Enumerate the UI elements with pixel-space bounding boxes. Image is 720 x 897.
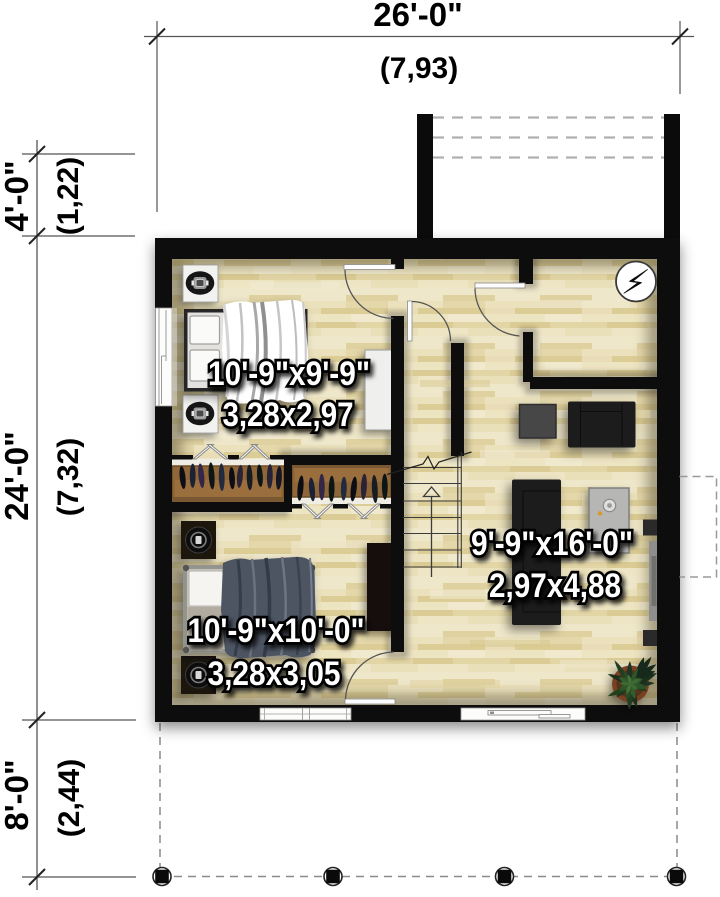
svg-text:24'-0": 24'-0" <box>0 431 35 521</box>
svg-text:2,97x4,88: 2,97x4,88 <box>489 567 621 605</box>
svg-text:3,28x2,97: 3,28x2,97 <box>223 396 354 434</box>
svg-text:(7,93): (7,93) <box>380 52 458 85</box>
svg-text:4'-0": 4'-0" <box>0 160 35 231</box>
svg-text:9'-9"x16'-0": 9'-9"x16'-0" <box>471 525 633 563</box>
svg-text:(2,44): (2,44) <box>53 759 86 837</box>
svg-text:(1,22): (1,22) <box>52 157 85 235</box>
svg-text:10'-9"x10'-0": 10'-9"x10'-0" <box>188 612 365 650</box>
svg-text:10'-9"x9'-9": 10'-9"x9'-9" <box>208 355 370 393</box>
svg-text:(7,32): (7,32) <box>52 438 85 516</box>
svg-text:3,28x3,05: 3,28x3,05 <box>208 655 341 693</box>
svg-text:8'-0": 8'-0" <box>0 759 35 830</box>
svg-text:26'-0": 26'-0" <box>373 0 463 33</box>
